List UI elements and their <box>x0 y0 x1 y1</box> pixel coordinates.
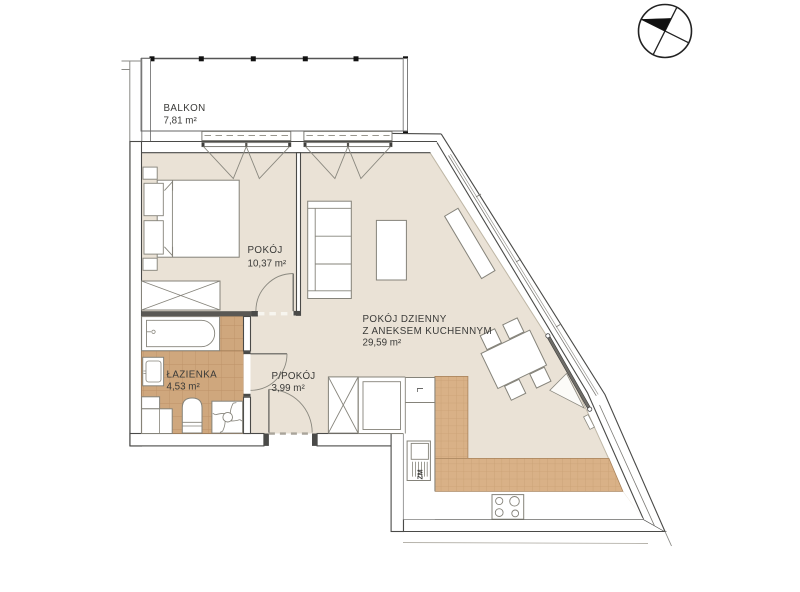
svg-text:7,81 m²: 7,81 m² <box>164 115 198 126</box>
svg-text:P/POKÓJ: P/POKÓJ <box>272 371 316 382</box>
svg-text:ŁAZIENKA: ŁAZIENKA <box>167 370 218 381</box>
svg-text:3,99 m²: 3,99 m² <box>272 383 306 394</box>
svg-text:10,37 m²: 10,37 m² <box>248 259 287 270</box>
svg-text:ZM: ZM <box>418 469 425 479</box>
svg-text:BALKON: BALKON <box>164 103 206 114</box>
svg-text:29,59 m²: 29,59 m² <box>363 338 402 349</box>
svg-text:L: L <box>415 388 425 393</box>
svg-text:4,53 m²: 4,53 m² <box>167 382 201 393</box>
svg-text:POKÓJ DZIENNY: POKÓJ DZIENNY <box>363 314 447 325</box>
svg-text:Z ANEKSEM KUCHENNYM: Z ANEKSEM KUCHENNYM <box>363 326 493 337</box>
svg-text:POKÓJ: POKÓJ <box>248 245 283 256</box>
